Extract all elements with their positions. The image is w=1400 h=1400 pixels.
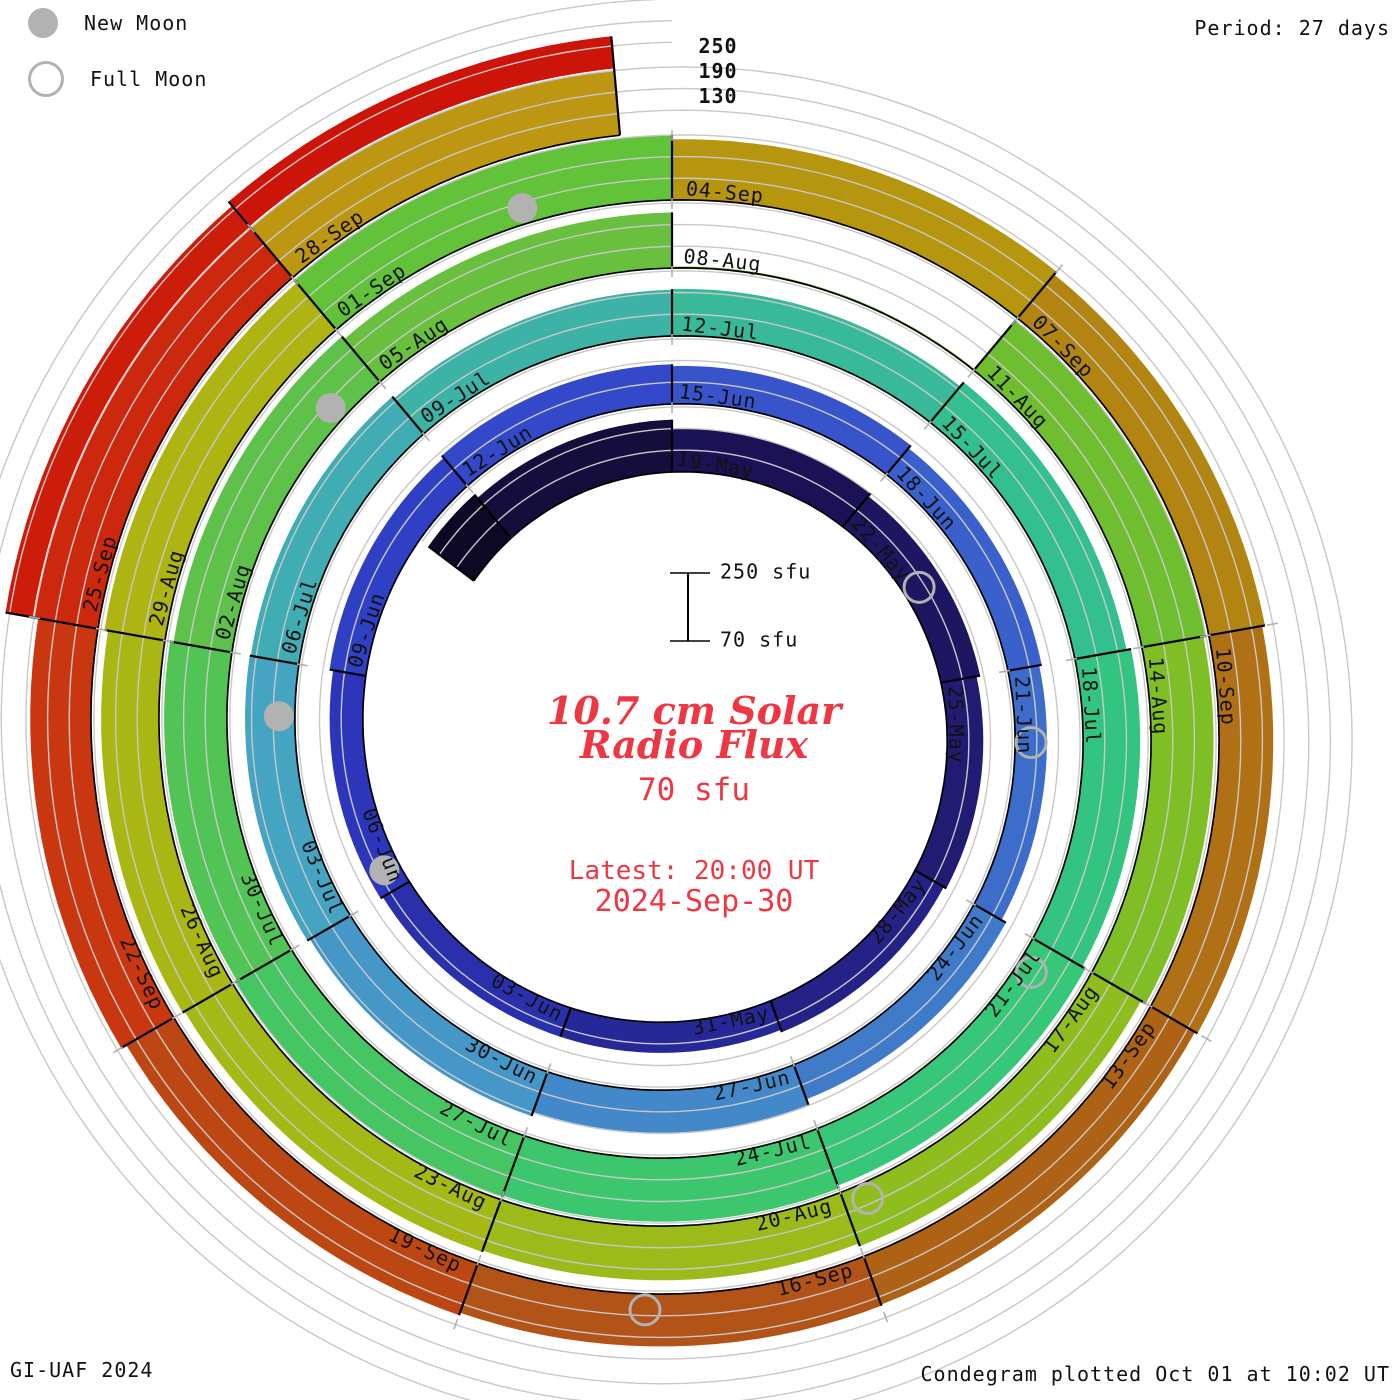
flux-bar-04-Sep — [672, 139, 1057, 318]
latest-time: Latest: 20:00 UT — [569, 856, 819, 886]
new-moon-icon — [28, 8, 58, 38]
scale-190: 190 — [688, 59, 748, 84]
full-moon-icon — [28, 61, 64, 97]
legend-new-moon: New Moon — [28, 4, 207, 42]
plotted-timestamp: Condegram plotted Oct 01 at 10:02 UT — [921, 1362, 1390, 1386]
new-moon-marker-02-Sep — [507, 193, 537, 223]
credit-text: GI-UAF 2024 — [10, 1358, 153, 1382]
current-flux-value: 70 sfu — [638, 772, 750, 808]
moon-legend: New Moon Full Moon — [28, 4, 207, 116]
scale-130: 130 — [688, 84, 748, 109]
condegram-page: 19-May22-May25-May28-May31-May03-Jun06-J… — [0, 0, 1400, 1400]
new-moon-marker-04-Aug — [316, 393, 346, 423]
legend-full-moon: Full Moon — [28, 60, 207, 98]
new-moon-marker-05-Jul — [264, 701, 294, 731]
flux-scale-numbers: 250 190 130 — [688, 34, 748, 109]
boundary-tick — [1267, 623, 1278, 625]
latest-date: 2024-Sep-30 — [595, 884, 794, 919]
date-label-25-May: 25-May — [943, 685, 968, 764]
chart-title: 10.7 cm Solar Radio Flux — [547, 694, 841, 762]
date-label-18-Jul: 18-Jul — [1077, 666, 1105, 746]
full-moon-label: Full Moon — [90, 67, 207, 91]
date-label-21-Jun: 21-Jun — [1010, 676, 1037, 755]
period-annotation: Period: 27 days — [1194, 16, 1390, 40]
scale-label-70sfu: 70 sfu — [720, 628, 798, 652]
new-moon-label: New Moon — [84, 11, 188, 35]
scale-label-250sfu: 250 sfu — [720, 560, 811, 584]
scale-250: 250 — [688, 34, 748, 59]
